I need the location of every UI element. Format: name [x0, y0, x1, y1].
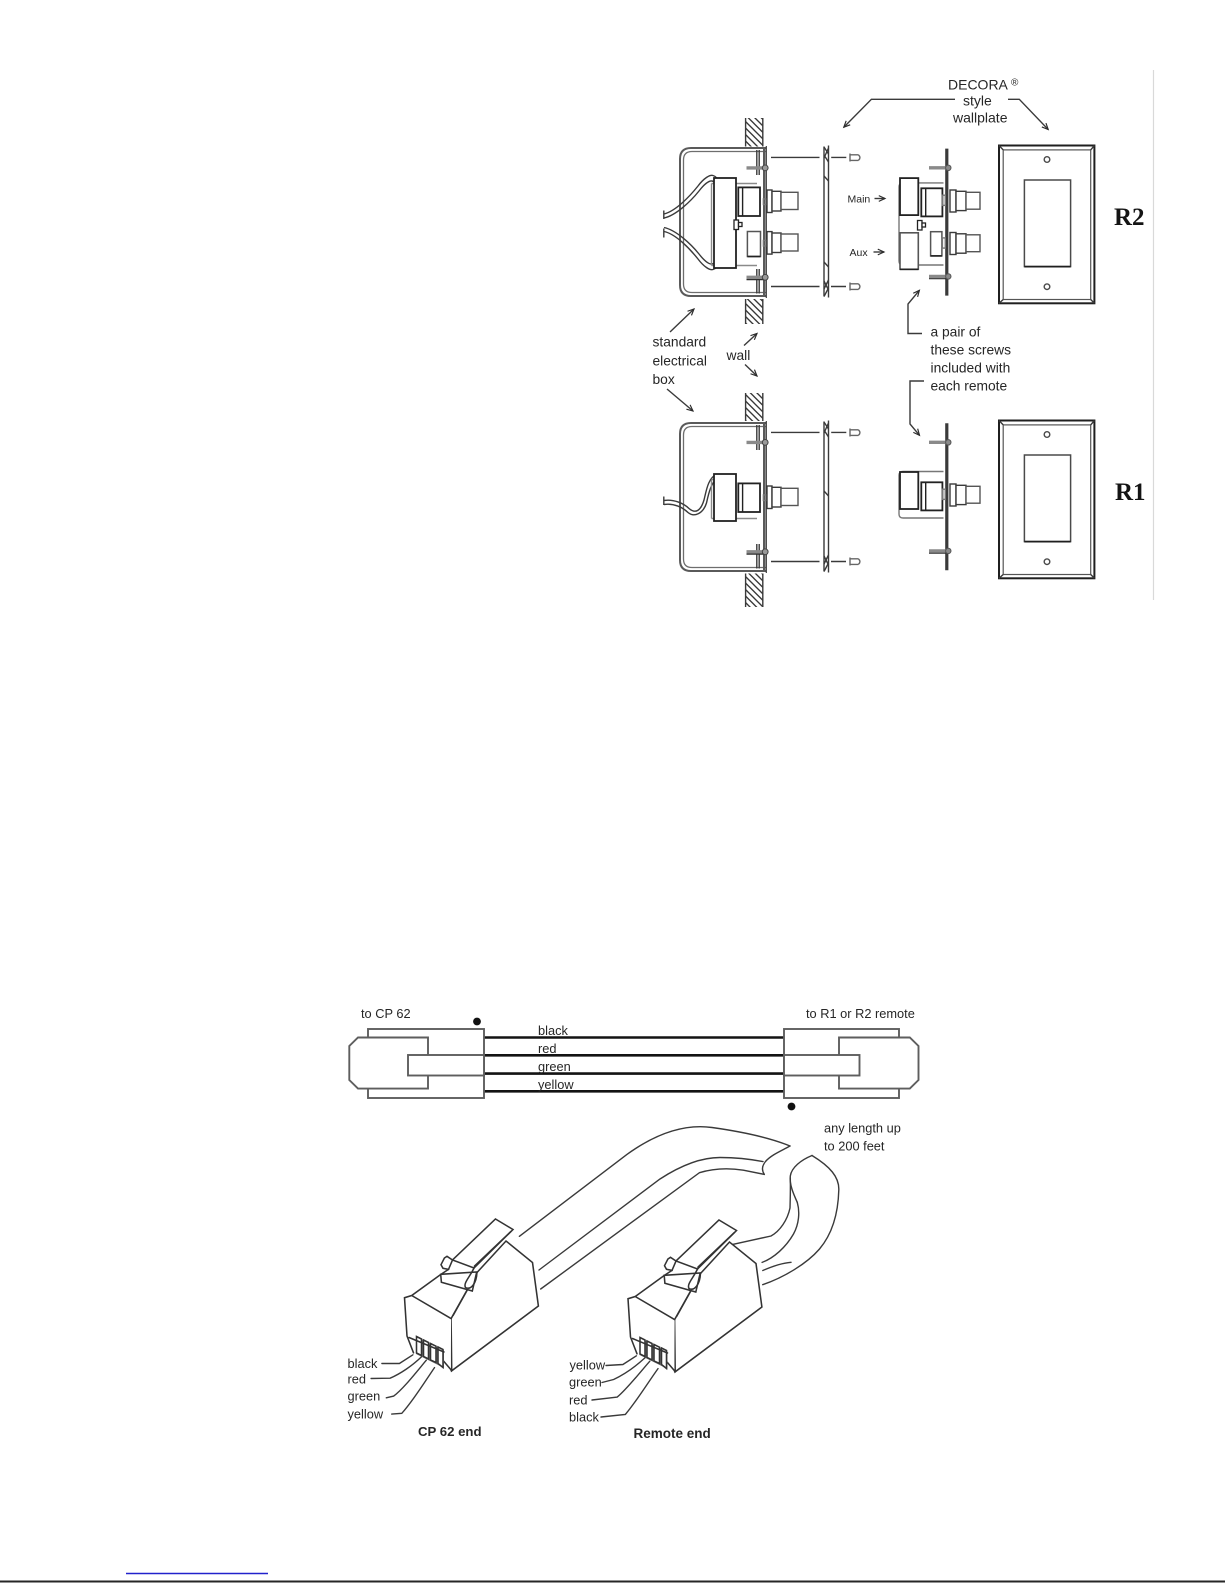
svg-text:Aux: Aux	[850, 247, 869, 259]
svg-text:each remote: each remote	[931, 379, 1008, 394]
svg-text:green: green	[569, 1375, 602, 1390]
svg-text:yellow: yellow	[348, 1407, 384, 1422]
svg-text:®: ®	[1011, 78, 1019, 89]
svg-text:yellow: yellow	[570, 1358, 606, 1373]
svg-text:wall: wall	[726, 348, 751, 363]
svg-text:R2: R2	[1114, 204, 1145, 231]
svg-text:included with: included with	[931, 361, 1011, 376]
svg-text:style: style	[963, 93, 992, 109]
svg-text:electrical: electrical	[653, 354, 707, 369]
svg-text:to CP 62: to CP 62	[361, 1006, 411, 1021]
svg-text:R1: R1	[1115, 479, 1146, 506]
svg-text:CP 62 end: CP 62 end	[418, 1424, 482, 1439]
svg-text:a pair of: a pair of	[931, 325, 981, 340]
svg-text:black: black	[538, 1023, 568, 1038]
svg-text:wallplate: wallplate	[952, 110, 1008, 126]
svg-text:box: box	[653, 372, 675, 387]
svg-text:green: green	[538, 1059, 571, 1074]
svg-text:Main: Main	[848, 194, 871, 206]
svg-text:yellow: yellow	[538, 1077, 574, 1092]
svg-text:red: red	[569, 1393, 588, 1408]
svg-text:these screws: these screws	[931, 343, 1012, 358]
svg-text:standard: standard	[653, 335, 707, 350]
svg-text:red: red	[348, 1372, 367, 1387]
svg-text:to R1 or R2 remote: to R1 or R2 remote	[806, 1006, 915, 1021]
svg-text:any length up: any length up	[824, 1121, 901, 1136]
svg-text:to 200 feet: to 200 feet	[824, 1139, 885, 1154]
svg-text:red: red	[538, 1041, 557, 1056]
svg-text:black: black	[569, 1410, 599, 1425]
svg-text:Remote end: Remote end	[634, 1426, 711, 1441]
svg-text:green: green	[348, 1389, 381, 1404]
svg-text:black: black	[348, 1356, 378, 1371]
svg-text:DECORA: DECORA	[948, 77, 1009, 93]
